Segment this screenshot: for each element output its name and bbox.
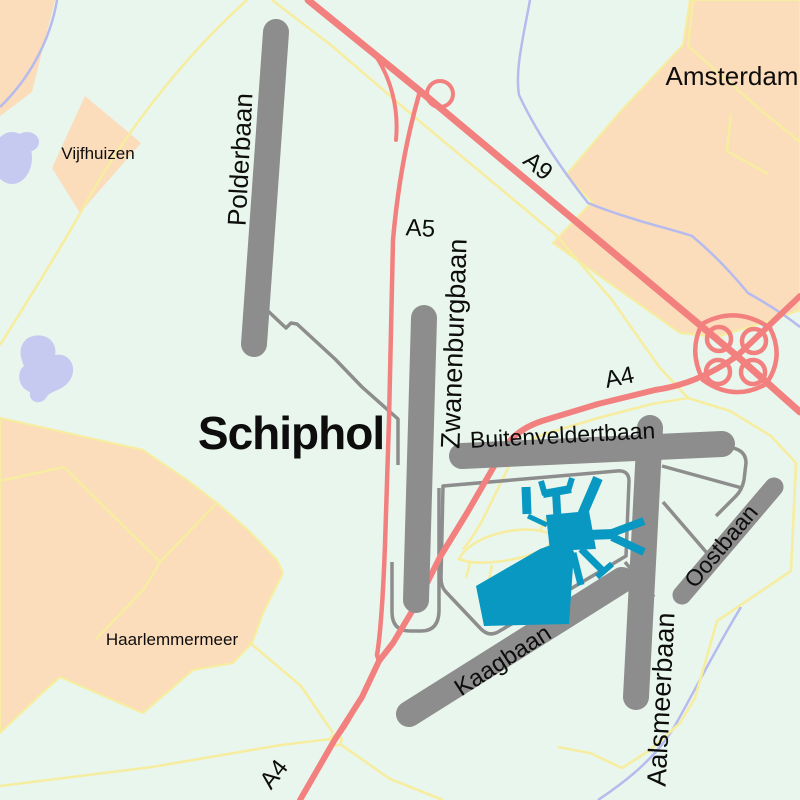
- terminal-pier-northwest: [526, 487, 527, 514]
- terminal-pier-north-horn-right: [568, 478, 572, 491]
- terminal-pier-north: [556, 492, 559, 546]
- map-canvas: Schiphol Amsterdam Vijfhuizen Haarlemmer…: [0, 0, 800, 800]
- terminal-pier-north-horn-left: [541, 481, 545, 495]
- haarlemmermeer-label: Haarlemmermeer: [106, 630, 239, 649]
- a5-label: A5: [405, 214, 436, 242]
- water-pond-west-lobe: [15, 132, 39, 152]
- vijfhuizen-label: Vijfhuizen: [61, 144, 134, 163]
- schiphol-label: Schiphol: [198, 407, 384, 459]
- runway-zwanenburgbaan: [416, 318, 424, 600]
- amsterdam-label: Amsterdam: [666, 61, 799, 91]
- terminal-pier-east-arm: [587, 534, 614, 535]
- schiphol-airport-map: Schiphol Amsterdam Vijfhuizen Haarlemmer…: [0, 0, 800, 800]
